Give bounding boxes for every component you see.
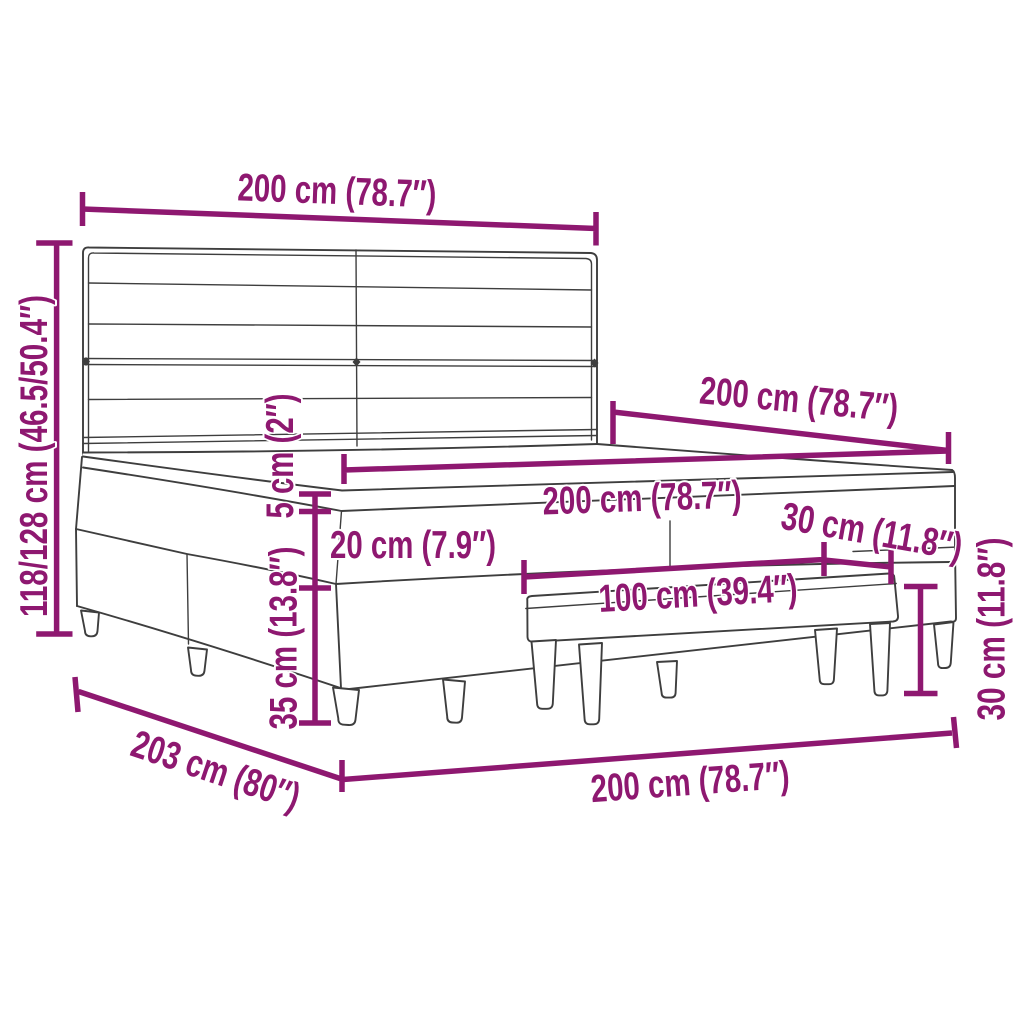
svg-text:5 cm (2″): 5 cm (2″) — [259, 394, 302, 519]
svg-text:118/128 cm (46.5/50.4″): 118/128 cm (46.5/50.4″) — [13, 295, 56, 617]
svg-text:200 cm (78.7″): 200 cm (78.7″) — [237, 166, 437, 216]
svg-text:20 cm (7.9″): 20 cm (7.9″) — [330, 524, 496, 567]
svg-text:35 cm (13.8″): 35 cm (13.8″) — [263, 547, 306, 730]
svg-text:30 cm (11.8″): 30 cm (11.8″) — [971, 538, 1014, 721]
svg-text:200 cm (78.7″): 200 cm (78.7″) — [542, 474, 742, 524]
